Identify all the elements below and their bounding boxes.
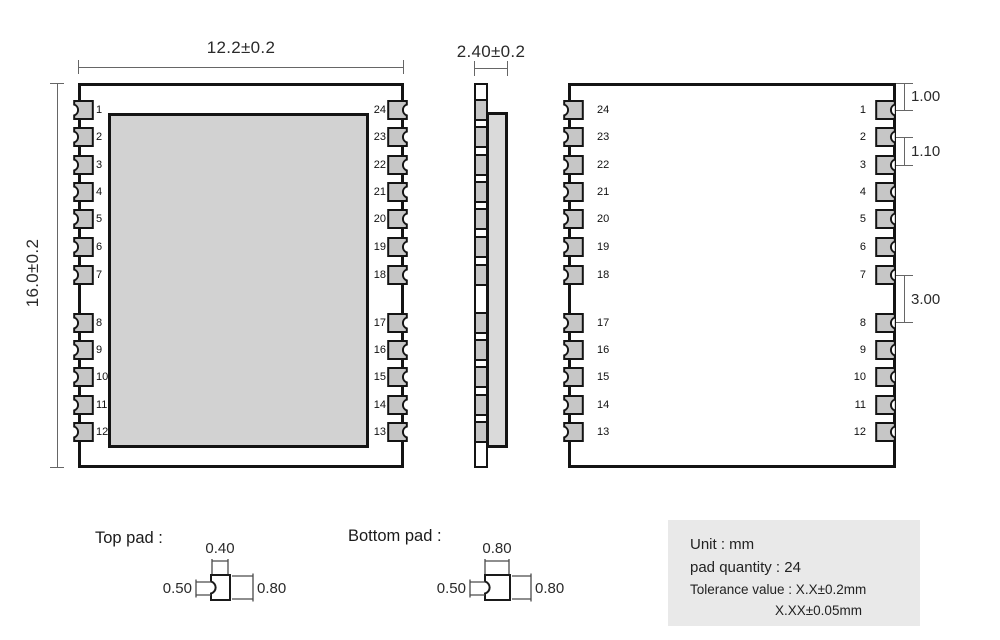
pin-number-label: 20 bbox=[362, 212, 386, 226]
castellation-pad-pin-11 bbox=[875, 395, 896, 415]
castellation-pad-pin-9 bbox=[73, 340, 94, 360]
pin-number-label: 13 bbox=[597, 425, 617, 439]
castellation-pad-pin-21 bbox=[563, 182, 584, 202]
castellation-pad-pin-8 bbox=[875, 313, 896, 333]
castellation-pad-pin-12 bbox=[73, 422, 94, 442]
spec-info-box: Unit : mm pad quantity : 24 Tolerance va… bbox=[668, 520, 920, 626]
castellation-pad-pin-16 bbox=[563, 340, 584, 360]
dim-bracket bbox=[212, 559, 228, 575]
castellation-pad-pin-14 bbox=[563, 395, 584, 415]
pin-number-label: 7 bbox=[840, 268, 866, 282]
pin-number-label: 12 bbox=[96, 425, 112, 439]
bottom-pad-shape bbox=[485, 575, 510, 600]
pin-number-label: 15 bbox=[597, 370, 617, 384]
pin-number-label: 9 bbox=[96, 343, 112, 357]
castellation-pad-pin-2 bbox=[73, 127, 94, 147]
castellation-pad-pin-11 bbox=[73, 395, 94, 415]
castellation-pad-pin-18 bbox=[387, 265, 408, 285]
pin-number-label: 3 bbox=[840, 158, 866, 172]
pin-number-label: 20 bbox=[597, 212, 617, 226]
castellation-pad-pin-23 bbox=[387, 127, 408, 147]
pad-quantity-line: pad quantity : 24 bbox=[690, 556, 920, 579]
castellation-pad-pin-6 bbox=[875, 237, 896, 257]
pin-number-label: 13 bbox=[362, 425, 386, 439]
castellation-pad-pin-4 bbox=[875, 182, 896, 202]
top-pad-notch-width-label: 0.40 bbox=[205, 540, 234, 557]
dim-tick bbox=[403, 60, 404, 74]
castellation-pad-pin-24 bbox=[387, 100, 408, 120]
tolerance-line-1: Tolerance value : X.X±0.2mm bbox=[690, 579, 920, 600]
pin-number-label: 23 bbox=[597, 130, 617, 144]
castellation-pad-pin-24 bbox=[563, 100, 584, 120]
pin-number-label: 8 bbox=[96, 316, 112, 330]
castellation-pad-pin-19 bbox=[387, 237, 408, 257]
castellation-pad-pin-5 bbox=[875, 209, 896, 229]
dim-tick bbox=[896, 322, 913, 323]
top-margin-dim-label: 1.00 bbox=[911, 88, 940, 105]
castellation-pad-pin-8 bbox=[73, 313, 94, 333]
top-pad-shape bbox=[211, 575, 230, 600]
castellation-pad-pin-3 bbox=[875, 155, 896, 175]
pin-number-label: 9 bbox=[840, 343, 866, 357]
pin-number-label: 21 bbox=[362, 185, 386, 199]
castellation-pad-pin-3 bbox=[73, 155, 94, 175]
dim-tick bbox=[474, 61, 475, 76]
dim-bracket bbox=[196, 580, 211, 598]
side-width-dim-label: 2.40±0.2 bbox=[421, 42, 561, 62]
castellation-pad-pin-2 bbox=[875, 127, 896, 147]
pin-number-label: 12 bbox=[840, 425, 866, 439]
pin-number-label: 6 bbox=[840, 240, 866, 254]
pin-number-label: 24 bbox=[362, 103, 386, 117]
castellation-pad-pin-20 bbox=[563, 209, 584, 229]
pin-number-label: 10 bbox=[96, 370, 112, 384]
dim-line bbox=[904, 84, 905, 111]
dim-tick bbox=[896, 110, 913, 111]
bottom-pad-height-label: 0.80 bbox=[535, 580, 564, 597]
side-width-dim-line bbox=[474, 68, 508, 69]
bottom-pad-width-label: 0.80 bbox=[482, 540, 511, 557]
top-pad-drawing: 0.40 0.50 0.80 bbox=[150, 538, 300, 604]
castellation-pad-pin-19 bbox=[563, 237, 584, 257]
dim-bracket bbox=[470, 580, 485, 598]
castellation-pad-pin-23 bbox=[563, 127, 584, 147]
dim-tick bbox=[50, 83, 64, 84]
package-dimension-drawing: 12.2±0.2 16.0±0.2 1234567891011122423222… bbox=[0, 0, 1000, 640]
front-width-dim-label: 12.2±0.2 bbox=[78, 38, 404, 58]
pin-number-label: 16 bbox=[362, 343, 386, 357]
front-height-dim-line bbox=[57, 83, 58, 468]
pin-number-label: 15 bbox=[362, 370, 386, 384]
pin-number-label: 23 bbox=[362, 130, 386, 144]
castellation-pad-pin-21 bbox=[387, 182, 408, 202]
dim-tick bbox=[896, 165, 913, 166]
pin-number-label: 1 bbox=[96, 103, 112, 117]
pin-number-label: 19 bbox=[362, 240, 386, 254]
pin-number-label: 14 bbox=[362, 398, 386, 412]
bottom-pad-drawing: 0.80 0.50 0.80 bbox=[410, 538, 585, 604]
dim-tick bbox=[507, 61, 508, 76]
castellation-pad-pin-6 bbox=[73, 237, 94, 257]
pad-pitch-dim-label: 1.10 bbox=[911, 143, 940, 160]
castellation-pad-pin-15 bbox=[387, 367, 408, 387]
pin-number-label: 2 bbox=[840, 130, 866, 144]
castellation-pad-pin-1 bbox=[875, 100, 896, 120]
castellation-pad-pin-14 bbox=[387, 395, 408, 415]
castellation-pad-pin-22 bbox=[563, 155, 584, 175]
top-pad-height-label: 0.80 bbox=[257, 580, 286, 597]
castellation-pad-pin-7 bbox=[73, 265, 94, 285]
castellation-pad-pin-17 bbox=[387, 313, 408, 333]
front-shield-can bbox=[108, 113, 369, 448]
castellation-pad-pin-13 bbox=[387, 422, 408, 442]
mid-gap-dim-label: 3.00 bbox=[911, 291, 940, 308]
dim-tick bbox=[896, 275, 913, 276]
dim-line bbox=[904, 137, 905, 166]
pin-number-label: 7 bbox=[96, 268, 112, 282]
castellation-pad-pin-5 bbox=[73, 209, 94, 229]
dim-tick bbox=[896, 83, 913, 84]
front-height-dim-label: 16.0±0.2 bbox=[23, 223, 41, 323]
front-width-dim-line bbox=[78, 67, 404, 68]
castellation-pad-pin-10 bbox=[73, 367, 94, 387]
dim-tick bbox=[50, 467, 64, 468]
pin-number-label: 2 bbox=[96, 130, 112, 144]
pin-number-label: 14 bbox=[597, 398, 617, 412]
dim-tick bbox=[896, 137, 913, 138]
castellation-pad-pin-17 bbox=[563, 313, 584, 333]
pin-number-label: 19 bbox=[597, 240, 617, 254]
pin-number-label: 11 bbox=[96, 398, 112, 412]
pin-number-label: 1 bbox=[840, 103, 866, 117]
dim-bracket bbox=[232, 574, 253, 602]
dim-bracket bbox=[485, 559, 509, 575]
tolerance-line-2: X.XX±0.05mm bbox=[775, 600, 920, 621]
castellation-pad-pin-7 bbox=[875, 265, 896, 285]
pin-number-label: 18 bbox=[597, 268, 617, 282]
castellation-pad-pin-10 bbox=[875, 367, 896, 387]
pin-number-label: 4 bbox=[96, 185, 112, 199]
pin-number-label: 11 bbox=[840, 398, 866, 412]
unit-line: Unit : mm bbox=[690, 533, 920, 556]
pin-number-label: 8 bbox=[840, 316, 866, 330]
pin-number-label: 24 bbox=[597, 103, 617, 117]
pin-number-label: 3 bbox=[96, 158, 112, 172]
pin-number-label: 5 bbox=[96, 212, 112, 226]
pin-number-label: 17 bbox=[362, 316, 386, 330]
pin-number-label: 6 bbox=[96, 240, 112, 254]
pin-number-label: 16 bbox=[597, 343, 617, 357]
pin-number-label: 22 bbox=[597, 158, 617, 172]
pin-number-label: 21 bbox=[597, 185, 617, 199]
castellation-pad-pin-4 bbox=[73, 182, 94, 202]
castellation-pad-pin-20 bbox=[387, 209, 408, 229]
castellation-pad-pin-13 bbox=[563, 422, 584, 442]
pin-number-label: 5 bbox=[840, 212, 866, 226]
pin-number-label: 4 bbox=[840, 185, 866, 199]
dim-line bbox=[904, 275, 905, 323]
pin-number-label: 10 bbox=[840, 370, 866, 384]
castellation-pad-pin-16 bbox=[387, 340, 408, 360]
pin-number-label: 22 bbox=[362, 158, 386, 172]
dim-bracket bbox=[512, 574, 531, 602]
castellation-pad-pin-15 bbox=[563, 367, 584, 387]
side-shield-can bbox=[486, 112, 508, 448]
castellation-pad-pin-1 bbox=[73, 100, 94, 120]
bottom-pad-notch-height-label: 0.50 bbox=[437, 580, 466, 597]
castellation-pad-pin-22 bbox=[387, 155, 408, 175]
pin-number-label: 18 bbox=[362, 268, 386, 282]
pin-number-label: 17 bbox=[597, 316, 617, 330]
castellation-pad-pin-9 bbox=[875, 340, 896, 360]
top-pad-notch-height-label: 0.50 bbox=[163, 580, 192, 597]
dim-tick bbox=[78, 60, 79, 74]
castellation-pad-pin-12 bbox=[875, 422, 896, 442]
castellation-pad-pin-18 bbox=[563, 265, 584, 285]
